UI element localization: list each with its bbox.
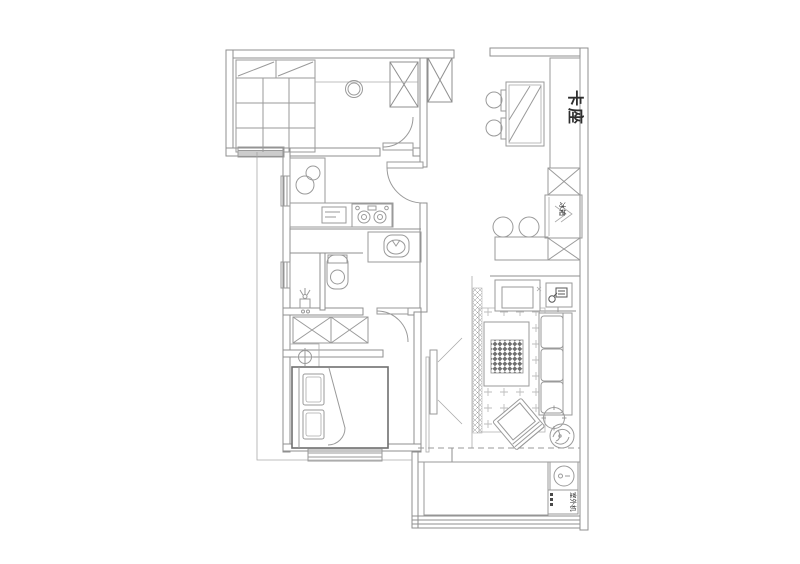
structural-column <box>390 62 418 107</box>
dining-chair <box>486 90 506 111</box>
wardrobe-grid <box>236 60 315 152</box>
tv-cone-line <box>438 400 462 424</box>
pot-icon <box>296 176 314 194</box>
sofa <box>539 313 572 415</box>
fridge-label: 冰箱 <box>558 202 567 216</box>
dining-chair <box>486 118 506 139</box>
ac-outdoor-unit: 室外机 <box>548 490 578 514</box>
storage-cabinet <box>293 317 368 343</box>
coffee-table <box>484 322 529 386</box>
vanity-basin <box>368 232 421 262</box>
bathroom-door <box>377 308 408 342</box>
fridge-niche: 冰箱 <box>545 195 582 238</box>
unit-vent-dot <box>550 498 553 501</box>
potted-plant-icon <box>550 424 574 448</box>
side-table <box>495 280 540 311</box>
bar-stool <box>493 217 513 237</box>
washing-machine <box>550 462 578 490</box>
floor-plan-page: 卡座 冰箱 <box>0 0 800 564</box>
bar-counter <box>493 217 548 260</box>
cooktop <box>352 204 392 227</box>
cutting-board <box>322 207 346 223</box>
bar-stool <box>519 217 539 237</box>
dining-table <box>506 82 544 146</box>
balcony-window <box>412 516 580 528</box>
unit-vent-dot <box>550 503 553 506</box>
kitchen-counter <box>290 158 393 227</box>
bed <box>292 367 388 448</box>
sliding-door-boundary <box>418 448 580 462</box>
booth-seat-label: 卡座 <box>566 90 585 126</box>
stool-icon <box>346 81 363 98</box>
tall-cabinet <box>548 168 580 195</box>
kitchen-door <box>387 162 423 203</box>
pot-icon <box>306 166 320 180</box>
structural-column <box>428 58 452 102</box>
tall-cabinet <box>548 238 580 260</box>
tv-cone-line <box>438 338 462 362</box>
floor-plan-svg: 卡座 冰箱 <box>0 0 800 564</box>
booth-seat: 卡座 <box>550 58 585 168</box>
tv <box>426 338 462 452</box>
toilet <box>327 255 348 289</box>
outdoor-unit-label: 室外机 <box>569 492 578 512</box>
balcony-cabinet <box>424 462 548 515</box>
entry-door <box>383 117 413 150</box>
unit-vent-dot <box>550 493 553 496</box>
